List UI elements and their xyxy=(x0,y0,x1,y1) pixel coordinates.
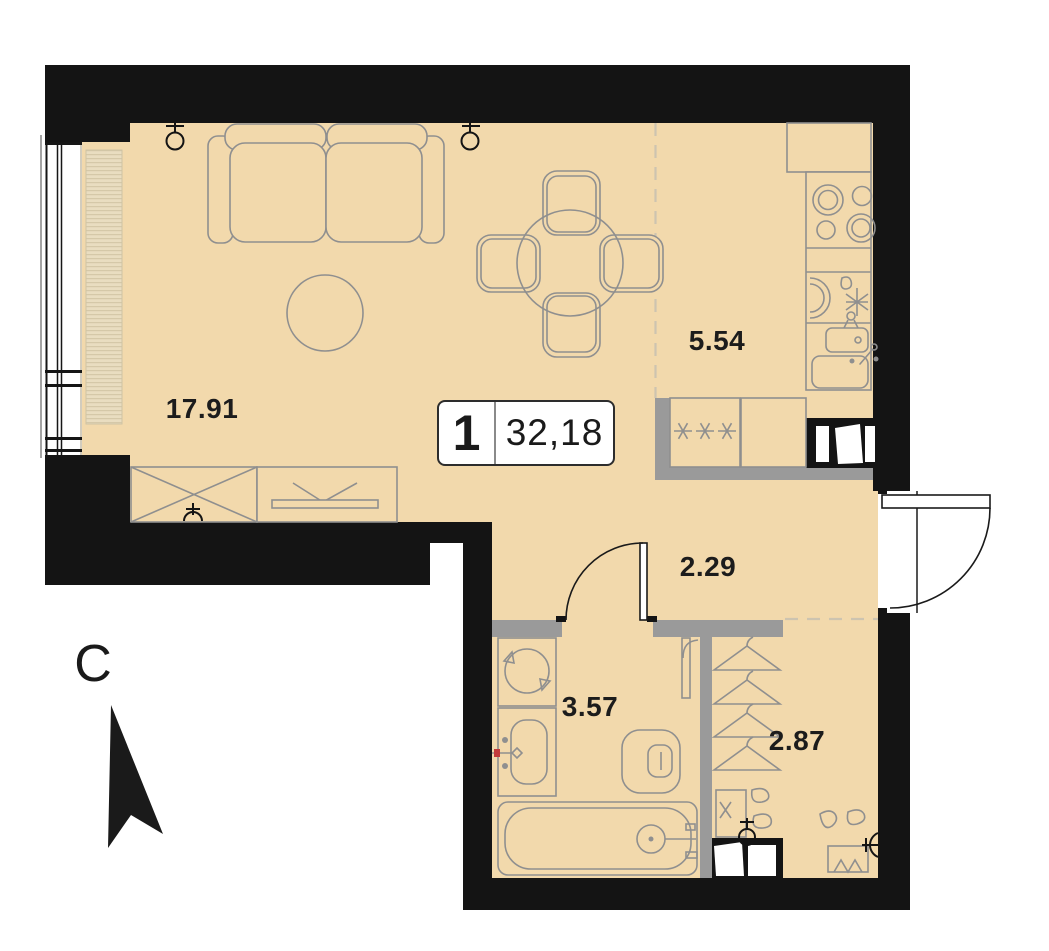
window-mullion xyxy=(45,449,82,452)
shaft-duct xyxy=(865,426,875,462)
toilet xyxy=(622,730,680,793)
fridge xyxy=(670,398,740,467)
bathtub xyxy=(498,802,697,875)
window-mullion xyxy=(45,437,82,440)
wall-pier-bottom-left xyxy=(45,455,130,522)
dining-chair xyxy=(477,235,540,292)
bathroom-sink xyxy=(492,708,556,796)
wall-top xyxy=(45,65,910,123)
area-label-bathroom: 3.57 xyxy=(562,691,619,723)
dining-chair xyxy=(543,293,600,357)
washing-machine xyxy=(498,638,556,706)
entrance-door xyxy=(878,489,990,613)
wall-bottom xyxy=(463,878,910,910)
window-mullion xyxy=(45,142,82,145)
shaft-duct xyxy=(835,424,863,464)
window-mullion xyxy=(45,370,82,373)
floor-plan: 17.91 5.54 2.29 3.57 2.87 1 32,18 С cons… xyxy=(0,0,1049,951)
dining-chair xyxy=(543,171,600,235)
shaft-duct xyxy=(714,842,744,876)
wall-living-bottom xyxy=(45,522,430,585)
window-band xyxy=(41,135,82,460)
wall-right-upper xyxy=(873,123,910,491)
tv-stand xyxy=(257,467,397,522)
area-label-kitchen: 5.54 xyxy=(689,325,746,357)
area-label-wardrobe: 2.87 xyxy=(769,725,826,757)
wall-pier-top-left xyxy=(45,65,130,142)
wall-bathroom-left xyxy=(463,543,492,910)
hall-floor-strip xyxy=(655,480,873,491)
shaft-duct xyxy=(816,426,829,462)
window-glazing-area xyxy=(45,142,82,460)
north-arrow-icon xyxy=(108,705,163,848)
wall-living-bottom-thin xyxy=(430,522,492,543)
shaft-duct xyxy=(748,845,776,876)
window-convector-hatch xyxy=(86,150,122,424)
unit-info-badge: 1 32,18 xyxy=(437,400,615,466)
dining-chair xyxy=(600,235,663,292)
window-mullion xyxy=(45,384,82,387)
faucet-valve xyxy=(494,749,500,757)
bathroom-partition-left xyxy=(492,620,562,637)
floor-plan-drawing xyxy=(0,0,1049,951)
door-jamb xyxy=(556,616,566,622)
area-label-living-room: 17.91 xyxy=(166,393,239,425)
door-jamb xyxy=(878,489,887,494)
door-leaf xyxy=(882,495,990,508)
kitchen-shaft xyxy=(806,418,878,468)
door-jamb xyxy=(647,616,657,622)
wardrobe-partition xyxy=(700,637,712,878)
tv-shelf xyxy=(272,500,378,508)
total-area: 32,18 xyxy=(496,402,613,464)
kitchen-cabinet xyxy=(741,398,806,467)
sofa-seat-cushion xyxy=(326,143,422,242)
door-leaf xyxy=(640,543,647,620)
area-label-hallway: 2.29 xyxy=(680,551,737,583)
round-rug xyxy=(287,275,363,351)
room-count: 1 xyxy=(439,402,494,464)
compass-north-label: С xyxy=(74,634,112,694)
door-jamb xyxy=(878,608,887,613)
door-swing-arc xyxy=(890,508,990,608)
kitchen-hall-partition xyxy=(655,467,878,480)
bathroom-partition-right xyxy=(653,620,783,637)
sofa-seat-cushion xyxy=(230,143,326,242)
sofa xyxy=(208,124,444,243)
wall-right-lower xyxy=(878,613,910,910)
